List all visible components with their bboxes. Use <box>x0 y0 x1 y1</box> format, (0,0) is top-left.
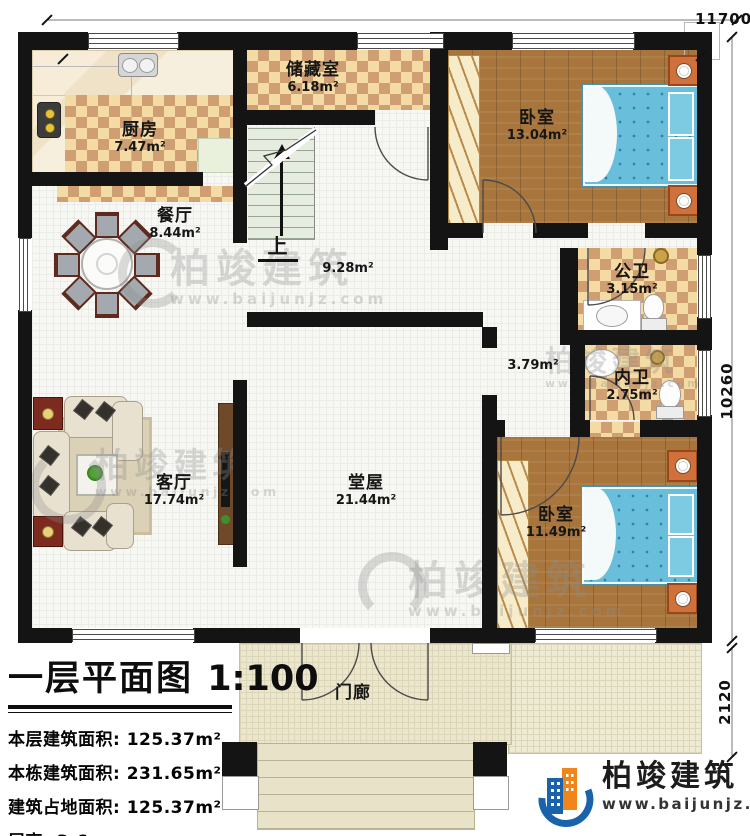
brand-logo-icon <box>532 762 594 828</box>
brand-logo: 柏竣建筑 www.baijunjz.com <box>532 762 750 828</box>
room-label-living: 客厅 17.74m² <box>119 473 229 508</box>
room-label-public-bath: 公卫 3.15m² <box>577 262 687 297</box>
up-text: 上 <box>243 235 313 259</box>
room-area: 11.49m² <box>501 525 611 540</box>
room-label-bedroom1: 卧室 13.04m² <box>482 108 592 143</box>
room-area: 3.79m² <box>478 358 588 373</box>
room-name: 卧室 <box>501 505 611 525</box>
room-area: 8.44m² <box>120 226 230 241</box>
room-area: 13.04m² <box>482 128 592 143</box>
title-underline-thin <box>8 712 232 713</box>
plan-title: 一层平面图 1:100 <box>8 650 319 701</box>
stat-line: 本层建筑面积: 125.37m² <box>8 725 319 750</box>
dimension-bottom-right: 2120 <box>716 662 734 742</box>
brand-website: www.baijunjz.com <box>602 795 750 813</box>
room-area: 17.74m² <box>119 493 229 508</box>
title-block: 一层平面图 1:100 本层建筑面积: 125.37m² 本栋建筑面积: 231… <box>8 650 319 836</box>
corridor-area-label: 3.79m² <box>478 358 588 373</box>
stat-line: 层高: 3.6m <box>8 827 319 836</box>
room-area: 7.47m² <box>85 140 195 155</box>
room-area: 2.75m² <box>577 388 687 403</box>
dimension-right: 10260 <box>718 351 736 431</box>
room-name: 卧室 <box>482 108 592 128</box>
floor-plan-canvas: 11700 10260 2120 厨房 7.47m² 餐厅 8.44m² 储藏室… <box>0 0 750 836</box>
room-name: 客厅 <box>119 473 229 493</box>
room-name: 厨房 <box>85 120 195 140</box>
room-name: 堂屋 <box>311 473 421 493</box>
room-label-bedroom2: 卧室 11.49m² <box>501 505 611 540</box>
title-text: 一层平面图 <box>8 659 193 699</box>
stat-line: 本栋建筑面积: 231.65m² <box>8 759 319 784</box>
stair-area-label: 9.28m² <box>293 261 403 276</box>
title-scale: 1:100 <box>207 659 318 699</box>
room-name: 公卫 <box>577 262 687 282</box>
dimension-top: 11700 <box>695 10 750 28</box>
room-name: 餐厅 <box>120 206 230 226</box>
room-area: 9.28m² <box>293 261 403 276</box>
room-label-storage: 储藏室 6.18m² <box>258 60 368 95</box>
room-label-private-bath: 内卫 2.75m² <box>577 368 687 403</box>
room-label-hall: 堂屋 21.44m² <box>311 473 421 508</box>
room-area: 3.15m² <box>577 282 687 297</box>
room-label-kitchen: 厨房 7.47m² <box>85 120 195 155</box>
room-area: 21.44m² <box>311 493 421 508</box>
title-underline <box>8 705 232 709</box>
stair-up-label: 上 <box>243 235 313 259</box>
stat-line: 建筑占地面积: 125.37m² <box>8 793 319 818</box>
brand-name: 柏竣建筑 <box>602 762 750 792</box>
room-name: 储藏室 <box>258 60 368 80</box>
room-area: 6.18m² <box>258 80 368 95</box>
room-label-dining: 餐厅 8.44m² <box>120 206 230 241</box>
room-name: 内卫 <box>577 368 687 388</box>
stair-up-underline <box>258 259 298 262</box>
